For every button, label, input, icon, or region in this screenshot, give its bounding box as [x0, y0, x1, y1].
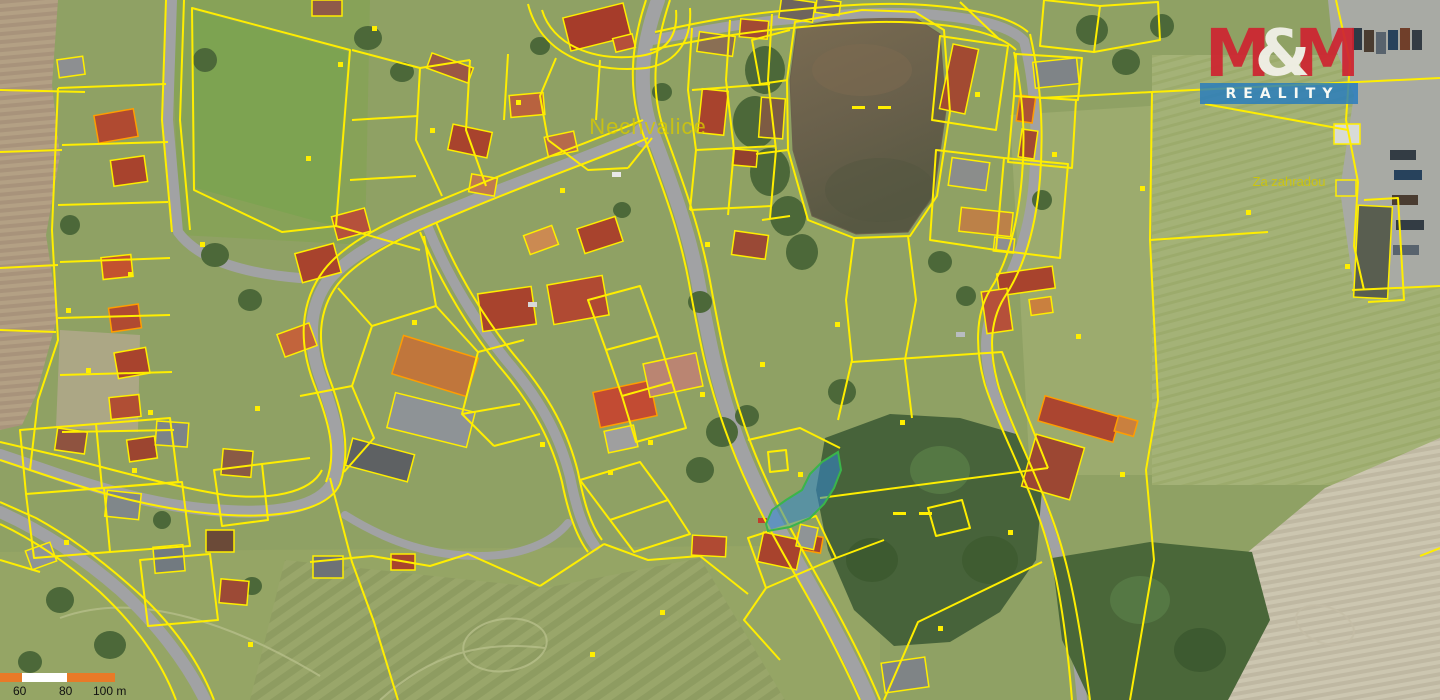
building — [221, 449, 253, 478]
scale-tick-60: 60 — [13, 684, 26, 698]
scale-bar-segments — [0, 673, 115, 682]
pond-deep — [825, 158, 935, 222]
pond-shallow — [812, 44, 912, 96]
building — [94, 109, 138, 144]
building — [691, 535, 726, 557]
scale-segment-orange — [0, 673, 22, 682]
logo-ampersand-icon: & — [1255, 26, 1304, 82]
scale-tick-100: 100 m — [93, 684, 126, 698]
building — [312, 0, 342, 16]
car — [612, 172, 621, 177]
warehouse-building — [1354, 205, 1393, 299]
scale-tick-80: 80 — [59, 684, 72, 698]
car — [528, 302, 537, 307]
building — [547, 275, 609, 324]
building — [1016, 95, 1035, 123]
building — [731, 231, 768, 259]
place-label-nechvalice: Nechvalice — [589, 114, 707, 139]
building — [1018, 129, 1038, 159]
field-label-za-zahradou: Za zahradou — [1253, 174, 1326, 189]
pond — [790, 14, 946, 234]
building — [110, 156, 147, 186]
building — [1033, 58, 1079, 88]
building — [732, 149, 757, 167]
mm-reality-logo: M&M REALITY — [1200, 26, 1358, 104]
building — [959, 207, 1013, 236]
map-viewport[interactable]: Nechvalice Za zahradou M&M REALITY 60 80… — [0, 0, 1440, 700]
map-scale-bar: 60 80 100 m — [0, 670, 150, 700]
aerial-cadastral-map[interactable]: Nechvalice Za zahradou — [0, 0, 1440, 700]
building — [881, 657, 929, 693]
building — [478, 286, 537, 331]
scale-segment-white — [22, 673, 67, 682]
scale-segment-orange — [67, 673, 115, 682]
building — [127, 436, 158, 462]
building — [1336, 180, 1356, 196]
forest-southeast — [1052, 542, 1270, 700]
building — [108, 304, 141, 332]
building — [206, 530, 234, 552]
building — [219, 579, 249, 605]
car — [956, 332, 965, 337]
logo-mm-row: M&M — [1200, 26, 1358, 82]
building — [109, 394, 141, 419]
building — [57, 56, 85, 77]
building — [1029, 297, 1053, 316]
building — [948, 157, 990, 190]
